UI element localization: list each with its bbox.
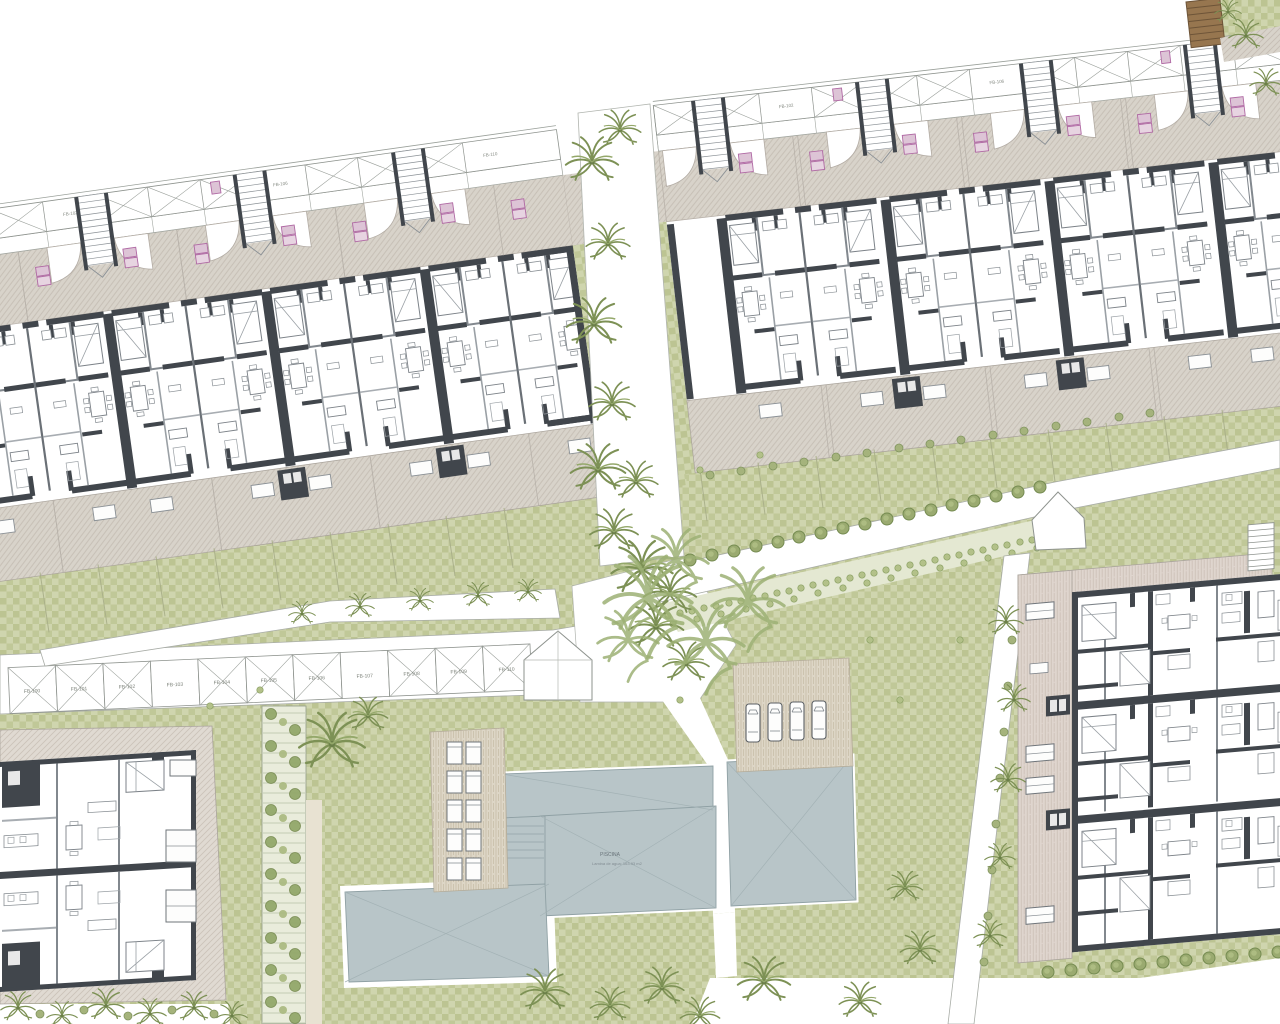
- svg-text:FB-108: FB-108: [403, 671, 420, 678]
- svg-text:FB-105: FB-105: [261, 677, 278, 684]
- svg-text:Lamina de agua: 163.93 m2: Lamina de agua: 163.93 m2: [592, 861, 643, 866]
- svg-text:FB-102: FB-102: [119, 684, 136, 691]
- svg-text:FB-100: FB-100: [24, 688, 41, 695]
- svg-text:FB-110: FB-110: [498, 667, 515, 674]
- svg-text:PISCINA: PISCINA: [600, 852, 621, 858]
- svg-text:FB-109: FB-109: [450, 669, 467, 676]
- svg-text:FB-107: FB-107: [356, 673, 373, 680]
- svg-text:FB-106: FB-106: [308, 675, 325, 682]
- svg-text:FB-103: FB-103: [167, 682, 184, 689]
- svg-text:FB-101: FB-101: [71, 686, 88, 693]
- svg-text:FB-104: FB-104: [214, 680, 231, 687]
